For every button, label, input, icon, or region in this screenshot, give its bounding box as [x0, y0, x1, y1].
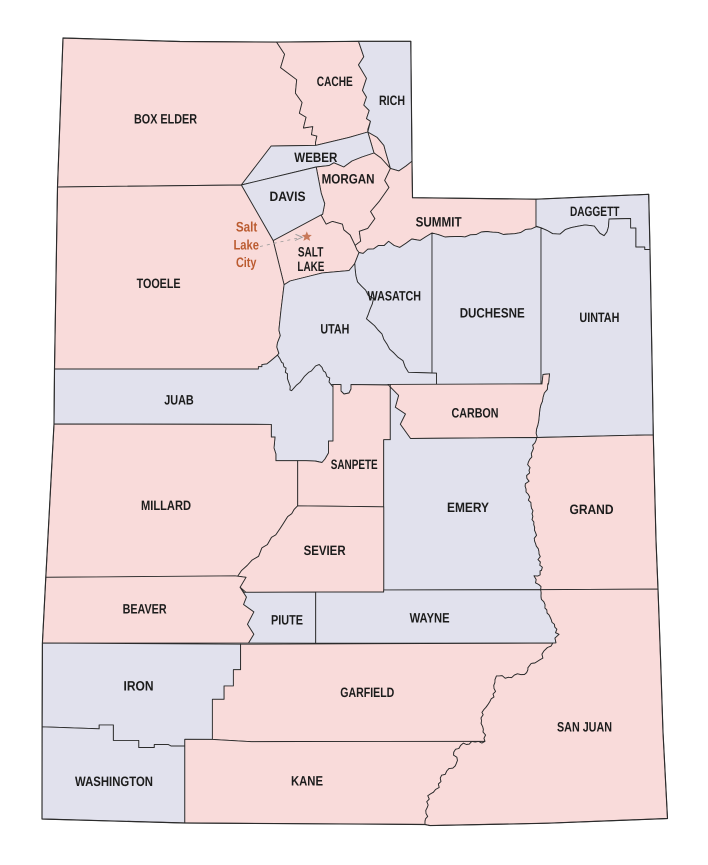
- svg-text:UTAH: UTAH: [320, 322, 349, 337]
- svg-text:Lake: Lake: [233, 237, 259, 252]
- svg-text:WEBER: WEBER: [294, 150, 337, 165]
- svg-text:DUCHESNE: DUCHESNE: [460, 305, 525, 320]
- svg-text:BEAVER: BEAVER: [123, 602, 167, 617]
- svg-text:UINTAH: UINTAH: [579, 310, 619, 325]
- svg-text:IRON: IRON: [124, 679, 154, 694]
- svg-text:TOOELE: TOOELE: [137, 276, 181, 291]
- svg-text:GRAND: GRAND: [570, 502, 614, 517]
- svg-text:CARBON: CARBON: [452, 406, 499, 421]
- svg-text:EMERY: EMERY: [447, 500, 489, 515]
- svg-text:SANPETE: SANPETE: [331, 457, 378, 472]
- svg-text:BOX ELDER: BOX ELDER: [134, 112, 197, 127]
- svg-text:PIUTE: PIUTE: [271, 613, 303, 628]
- svg-text:SEVIER: SEVIER: [304, 543, 346, 558]
- svg-text:CACHE: CACHE: [317, 74, 353, 89]
- svg-text:MORGAN: MORGAN: [322, 172, 375, 187]
- svg-text:SAN JUAN: SAN JUAN: [557, 720, 612, 735]
- svg-text:SUMMIT: SUMMIT: [416, 215, 463, 230]
- svg-text:RICH: RICH: [379, 93, 405, 108]
- svg-text:KANE: KANE: [291, 774, 323, 789]
- svg-text:LAKE: LAKE: [297, 259, 324, 274]
- svg-text:GARFIELD: GARFIELD: [340, 685, 394, 700]
- svg-text:WASATCH: WASATCH: [368, 288, 422, 303]
- svg-text:WASHINGTON: WASHINGTON: [75, 774, 153, 789]
- svg-text:City: City: [236, 255, 257, 270]
- svg-text:DAGGETT: DAGGETT: [570, 204, 620, 219]
- svg-text:WAYNE: WAYNE: [410, 611, 450, 626]
- svg-text:SALT: SALT: [298, 244, 324, 259]
- svg-text:DAVIS: DAVIS: [270, 189, 306, 204]
- svg-text:MILLARD: MILLARD: [141, 498, 191, 513]
- svg-text:JUAB: JUAB: [164, 393, 194, 408]
- svg-text:Salt: Salt: [236, 220, 258, 235]
